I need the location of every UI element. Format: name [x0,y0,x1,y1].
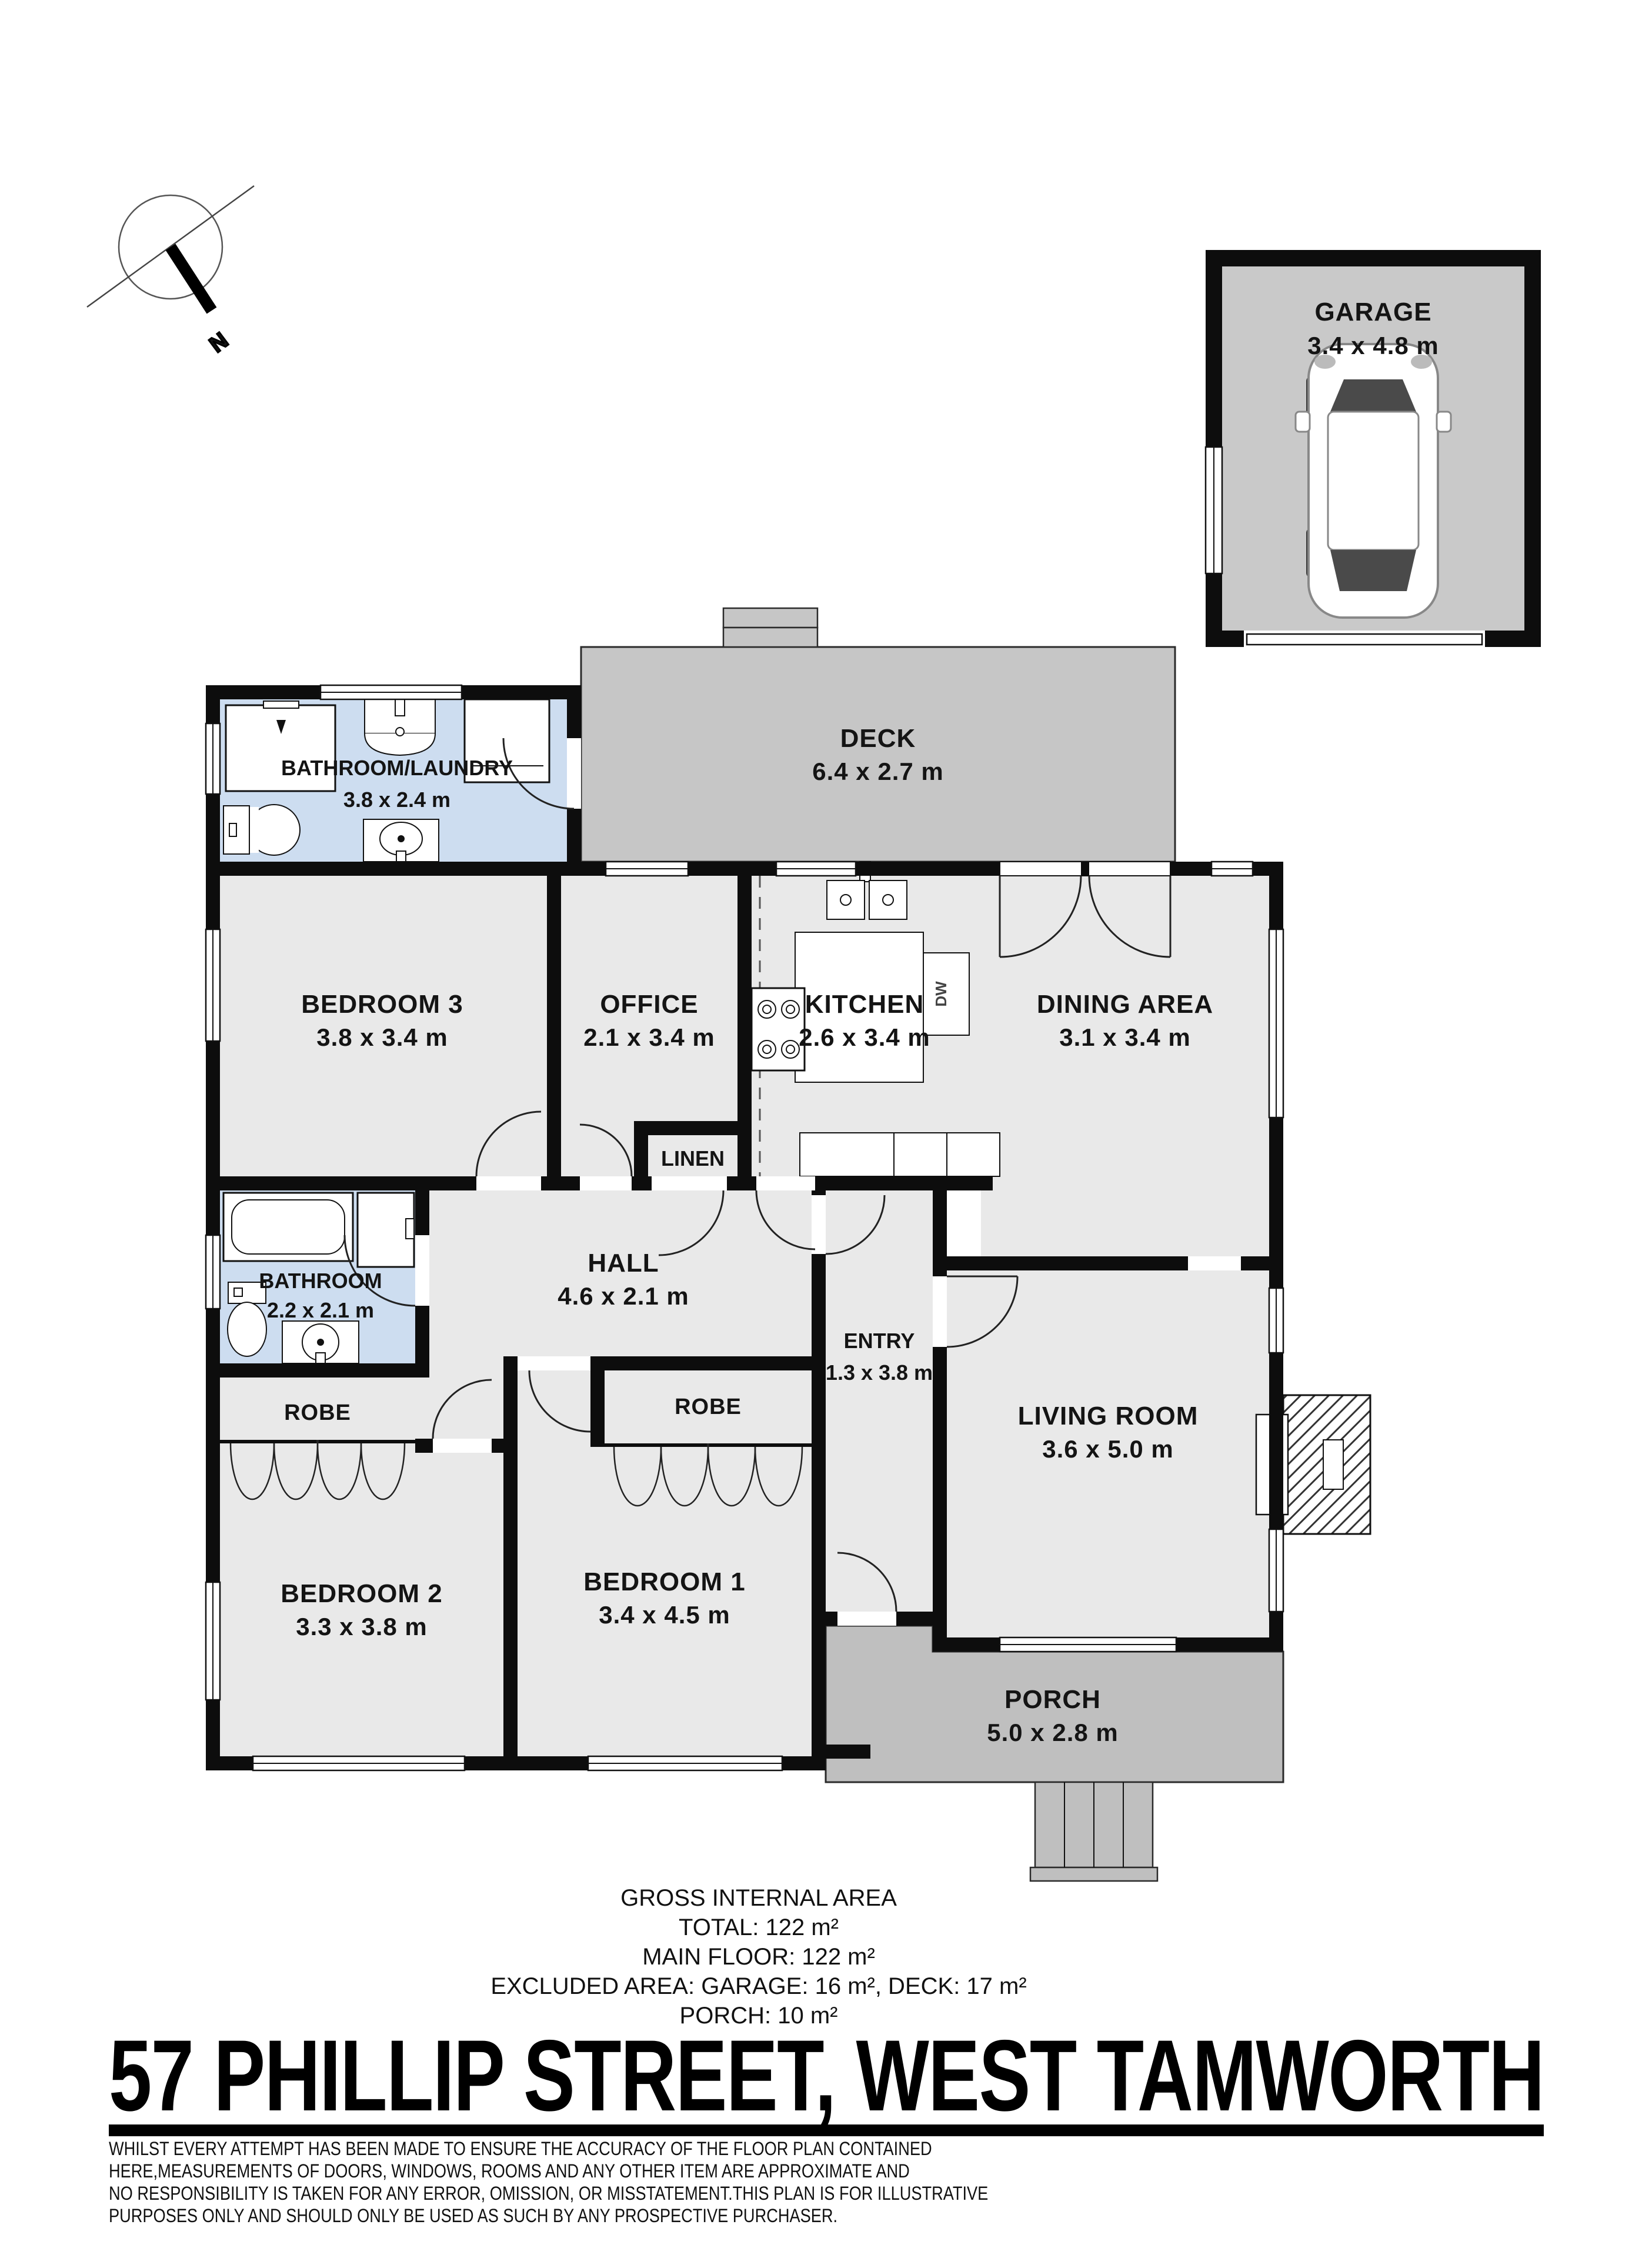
bathroom-dims: 2.2 x 2.1 m [267,1298,374,1322]
area-summary-main-floor: MAIN FLOOR: 122 m² [642,1944,875,1970]
bathroom-laundry-dims: 3.8 x 2.4 m [343,788,450,812]
disclaimer: WHILST EVERY ATTEMPT HAS BEEN MADE TO EN… [109,2139,988,2227]
bedroom1-floor [518,1356,812,1756]
entry-dims: 1.3 x 3.8 m [826,1360,933,1385]
porch-steps-lip [1030,1867,1157,1881]
bathroom-laundry-label: BATHROOM/LAUNDRY [281,756,513,780]
floor-plan-canvas: N [0,0,1652,2258]
vanity-sink-icon [363,819,439,862]
garage-door [1247,634,1482,645]
north-arrow-icon: N [87,186,254,358]
floor-plan-page: N [0,0,1652,2258]
car-roof [1328,412,1419,550]
area-summary: GROSS INTERNAL AREA TOTAL: 122 m² MAIN F… [490,1885,1026,2029]
porch-label: PORCH [1004,1685,1101,1714]
deck-steps [723,608,817,628]
robe-bedroom1-label: ROBE [675,1395,742,1419]
disclaimer-line: WHILST EVERY ATTEMPT HAS BEEN MADE TO EN… [109,2139,932,2160]
car-windshield [1330,379,1416,412]
bedroom1-label: BEDROOM 1 [583,1567,745,1596]
deck-steps [723,628,817,647]
car-rear-window [1330,550,1416,591]
deck-dims: 6.4 x 2.7 m [812,758,943,785]
dishwasher-icon: DW [923,953,969,1035]
kitchen-label: KITCHEN [805,990,925,1019]
bedroom3-dims: 3.8 x 3.4 m [316,1023,448,1051]
dining-floor [981,876,1269,1256]
laundry-sink-icon [365,699,435,755]
area-summary-heading: GROSS INTERNAL AREA [620,1885,897,1911]
disclaimer-line: PURPOSES ONLY AND SHOULD ONLY BE USED AS… [109,2206,837,2227]
porch-area [826,1626,1283,1881]
area-summary-total: TOTAL: 122 m² [679,1915,839,1940]
page-title: 57 PHILLIP STREET, WEST TAMWORTH [109,2019,1544,2132]
stove-icon [752,988,805,1070]
vanity-sink-icon [282,1321,359,1363]
bedroom2-label: BEDROOM 2 [281,1579,442,1608]
toilet-icon [223,805,300,855]
bedroom2-dims: 3.3 x 3.8 m [296,1613,427,1640]
dishwasher-label: DW [932,981,950,1007]
garage-label: GARAGE [1314,298,1431,326]
bedroom3-label: BEDROOM 3 [301,990,463,1019]
dining-dims: 3.1 x 3.4 m [1059,1023,1190,1051]
car-top-view-illustration [1296,344,1451,618]
robe-bedroom2-label: ROBE [284,1400,351,1425]
dining-label: DINING AREA [1037,990,1213,1019]
area-summary-excluded: EXCLUDED AREA: GARAGE: 16 m², DECK: 17 m… [490,1973,1026,1999]
north-label: N [205,328,233,358]
hall-dims: 4.6 x 2.1 m [558,1282,689,1310]
hall-label: HALL [588,1249,659,1278]
bathtub-icon [223,1193,353,1261]
kitchen-bench-fridge [800,1133,1000,1176]
garage-dims: 3.4 x 4.8 m [1307,332,1439,359]
office-dims: 2.1 x 3.4 m [583,1023,715,1051]
linen-label: LINEN [661,1146,725,1170]
shower-icon [358,1193,414,1267]
toilet-icon [228,1282,266,1356]
bedroom2-floor [220,1378,503,1756]
entry-label: ENTRY [844,1329,915,1353]
living-room-dims: 3.6 x 5.0 m [1042,1435,1173,1463]
porch-dims: 5.0 x 2.8 m [987,1719,1118,1746]
office-label: OFFICE [600,990,698,1019]
car-mirror [1437,412,1451,432]
disclaimer-line: NO RESPONSIBILITY IS TAKEN FOR ANY ERROR… [109,2183,988,2204]
deck-label: DECK [840,724,916,753]
living-room-label: LIVING ROOM [1018,1402,1199,1430]
title-divider [109,2124,1544,2136]
kitchen-dims: 2.6 x 3.4 m [799,1023,930,1051]
car-mirror [1296,412,1310,432]
bathroom-label: BATHROOM [259,1269,382,1293]
disclaimer-line: HERE,MEASUREMENTS OF DOORS, WINDOWS, ROO… [109,2161,910,2182]
entry-floor [826,1190,933,1612]
bedroom1-dims: 3.4 x 4.5 m [599,1601,730,1629]
